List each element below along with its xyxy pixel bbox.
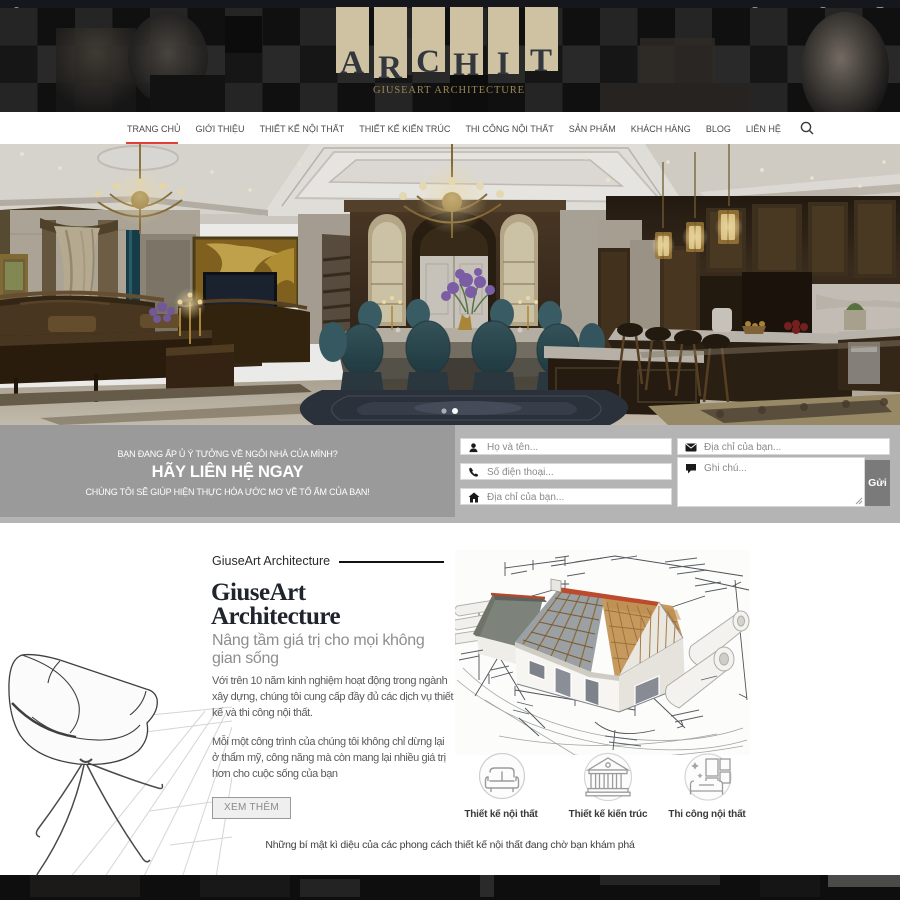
svg-text:T: T — [530, 43, 552, 79]
svg-text:R: R — [378, 50, 403, 86]
svg-text:H: H — [453, 47, 479, 83]
svg-text:A: A — [340, 45, 364, 81]
svg-text:GIUSEART ARCHITECTURE: GIUSEART ARCHITECTURE — [373, 85, 525, 96]
svg-text:I: I — [497, 46, 510, 82]
svg-text:C: C — [416, 44, 440, 80]
